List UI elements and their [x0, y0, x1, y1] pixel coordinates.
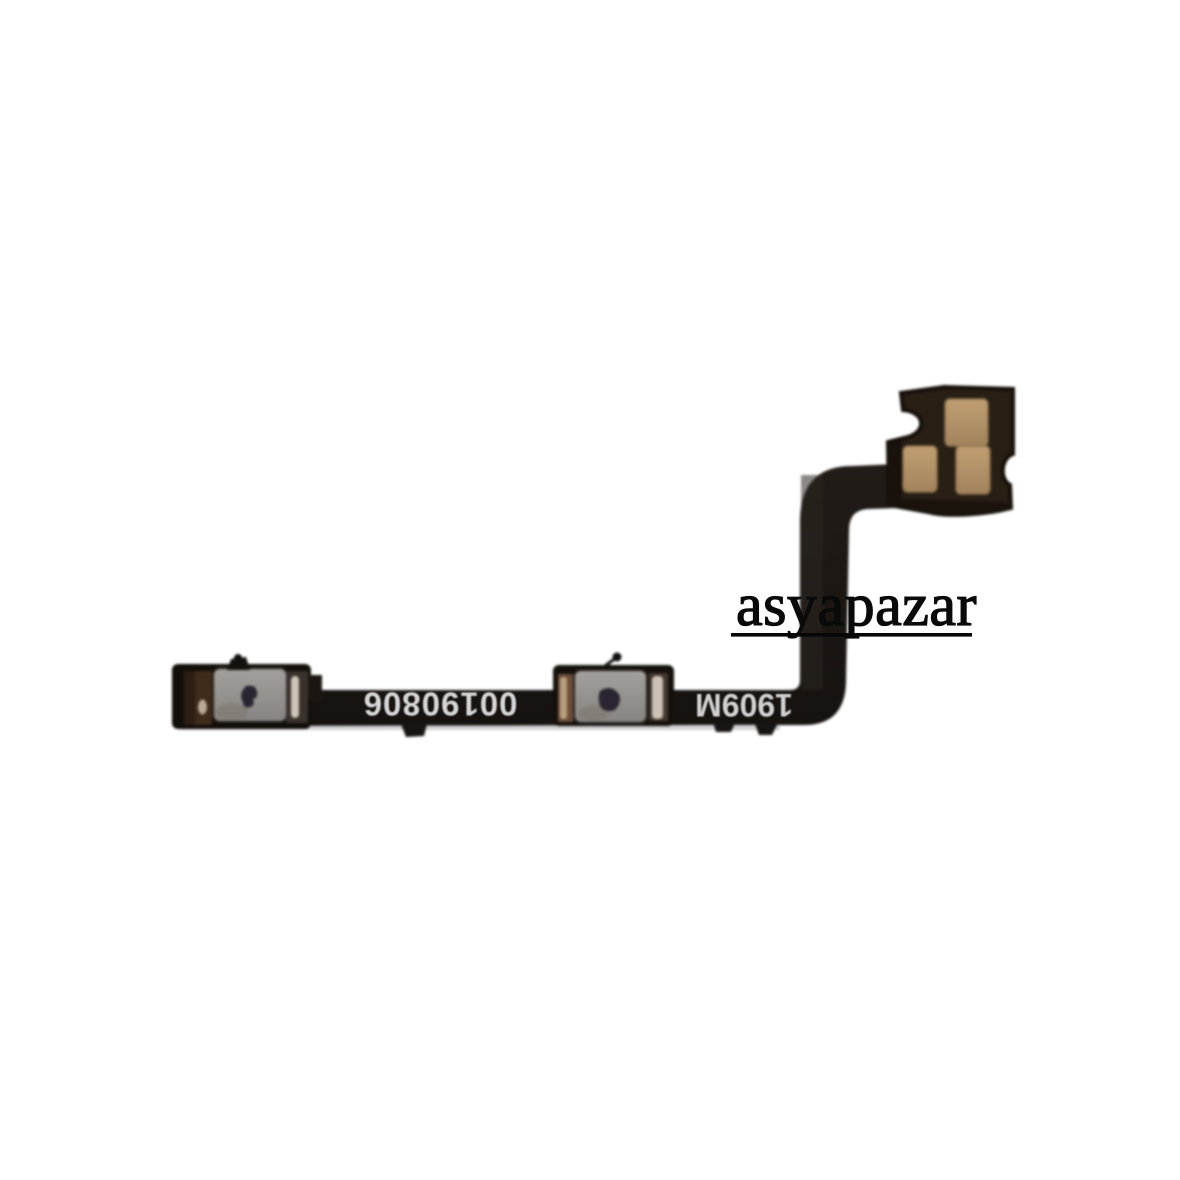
svg-text:asyapazar: asyapazar — [736, 572, 977, 638]
svg-text:1909M: 1909M — [695, 687, 793, 723]
svg-text:00190806: 00190806 — [363, 686, 518, 723]
